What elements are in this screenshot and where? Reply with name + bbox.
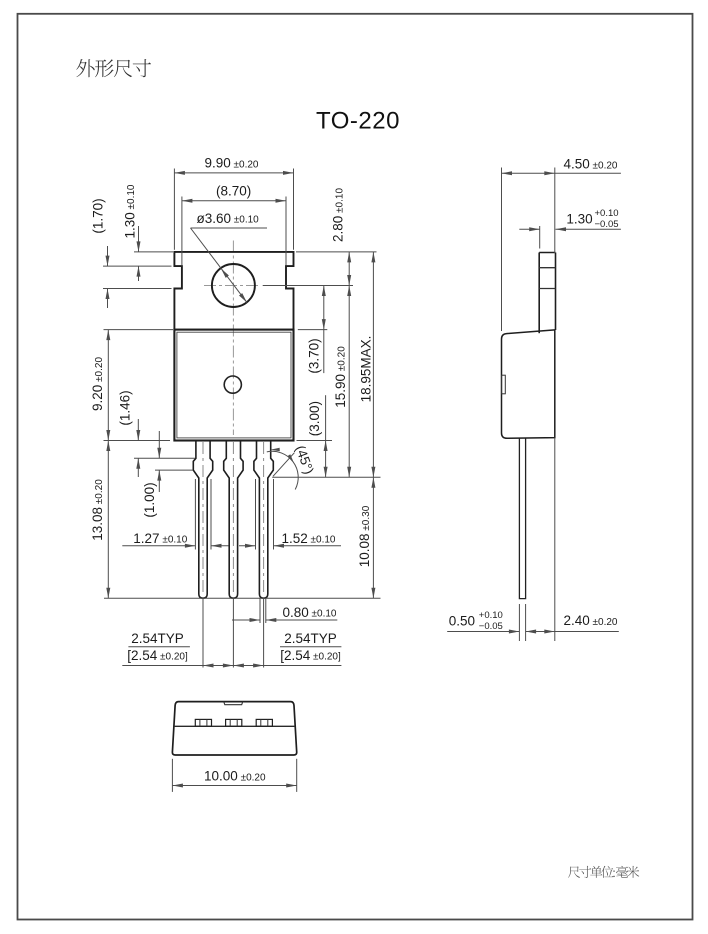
svg-text:−0.05: −0.05 (479, 621, 503, 632)
svg-text:(3.70): (3.70) (307, 338, 322, 373)
svg-text:(1.46): (1.46) (117, 390, 132, 425)
svg-text:18.95MAX.: 18.95MAX. (358, 336, 373, 403)
svg-text:(1.00): (1.00) (142, 482, 157, 517)
svg-text:(3.00): (3.00) (307, 401, 322, 436)
svg-text:+0.10: +0.10 (479, 610, 503, 621)
svg-text:2.54TYP: 2.54TYP (131, 631, 184, 646)
svg-text:TO-220: TO-220 (316, 107, 400, 134)
svg-text:0.50: 0.50 (449, 614, 475, 629)
svg-text:(8.70): (8.70) (216, 183, 251, 198)
svg-text:(1.70): (1.70) (91, 198, 106, 233)
svg-text:+0.10: +0.10 (595, 208, 619, 219)
svg-text:−0.05: −0.05 (595, 219, 619, 230)
svg-text:2.54TYP: 2.54TYP (284, 631, 337, 646)
svg-text:1.30: 1.30 (566, 211, 592, 226)
